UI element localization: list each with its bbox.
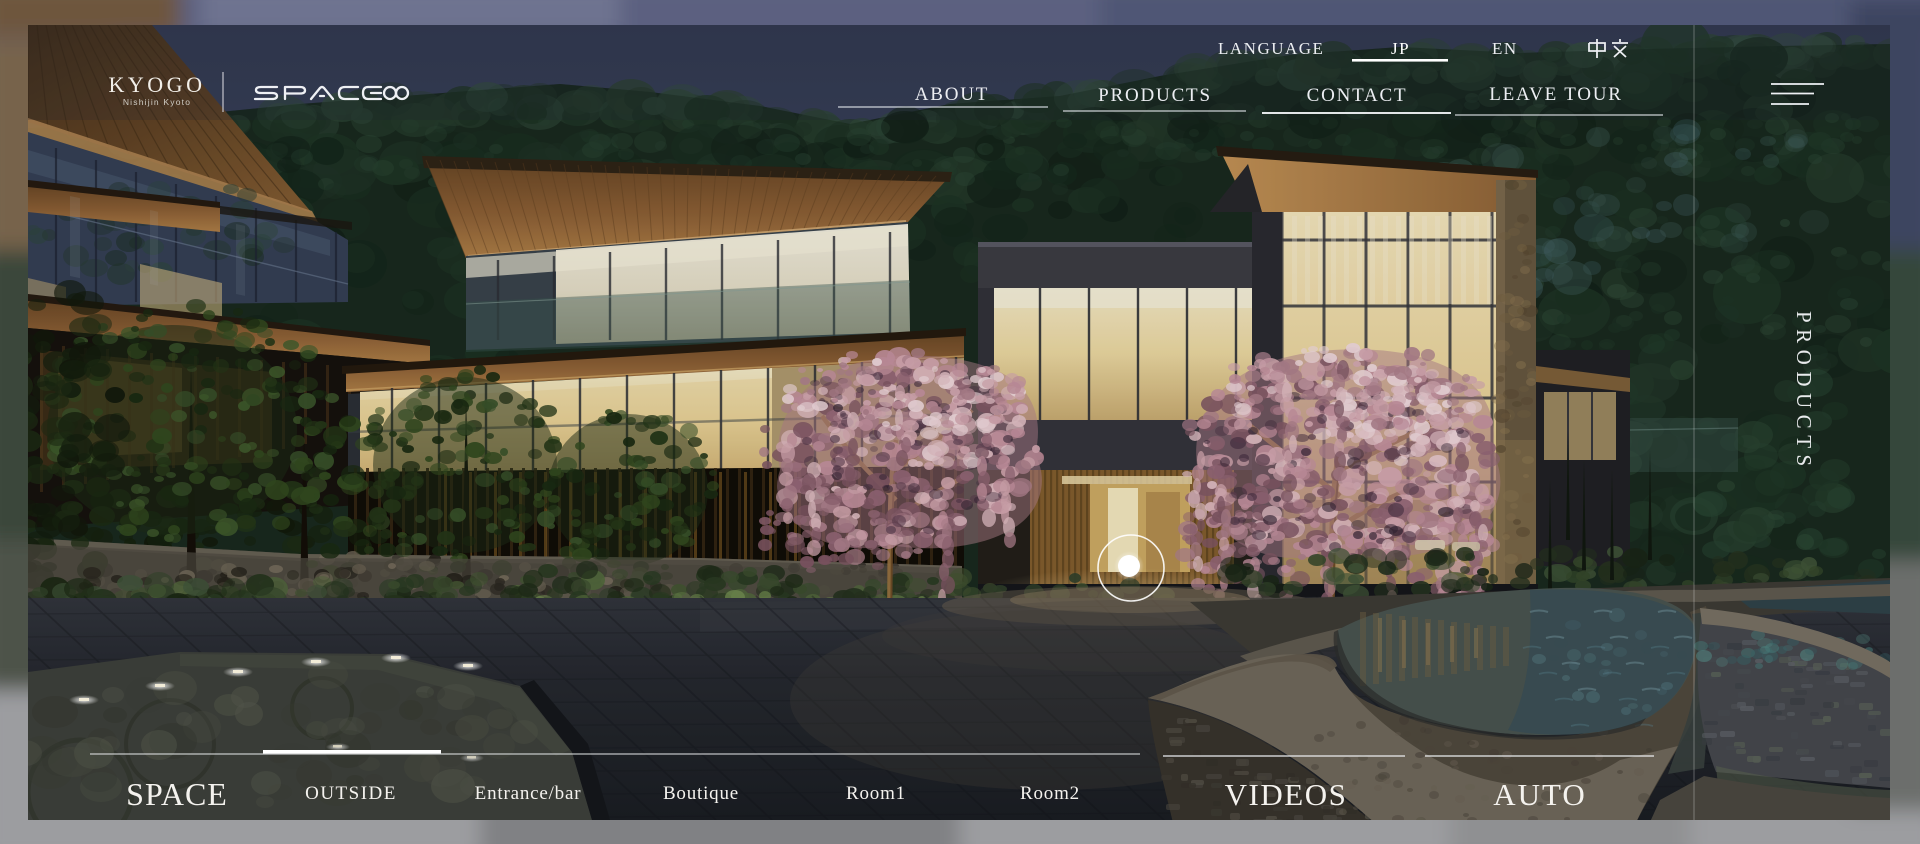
svg-text:Room1: Room1 xyxy=(846,783,906,804)
svg-text:ABOUT: ABOUT xyxy=(915,84,989,105)
svg-text:Nishijin Kyoto: Nishijin Kyoto xyxy=(123,97,191,107)
svg-text:LANGUAGE: LANGUAGE xyxy=(1218,39,1324,58)
svg-text:CONTACT: CONTACT xyxy=(1307,85,1408,106)
svg-text:OUTSIDE: OUTSIDE xyxy=(305,783,397,804)
svg-text:EN: EN xyxy=(1492,39,1518,58)
svg-text:Boutique: Boutique xyxy=(663,783,739,804)
svg-text:VIDEOS: VIDEOS xyxy=(1225,777,1348,812)
svg-text:Room2: Room2 xyxy=(1020,783,1080,804)
svg-text:JP: JP xyxy=(1391,39,1410,58)
svg-text:KYOGO: KYOGO xyxy=(109,72,206,97)
svg-text:Entrance/bar: Entrance/bar xyxy=(475,783,582,804)
svg-text:AUTO: AUTO xyxy=(1493,777,1587,812)
svg-text:PRODUCTS: PRODUCTS xyxy=(1792,311,1816,473)
svg-text:LEAVE TOUR: LEAVE TOUR xyxy=(1489,84,1623,105)
svg-text:SPACE: SPACE xyxy=(126,776,228,812)
svg-text:PRODUCTS: PRODUCTS xyxy=(1098,85,1212,106)
